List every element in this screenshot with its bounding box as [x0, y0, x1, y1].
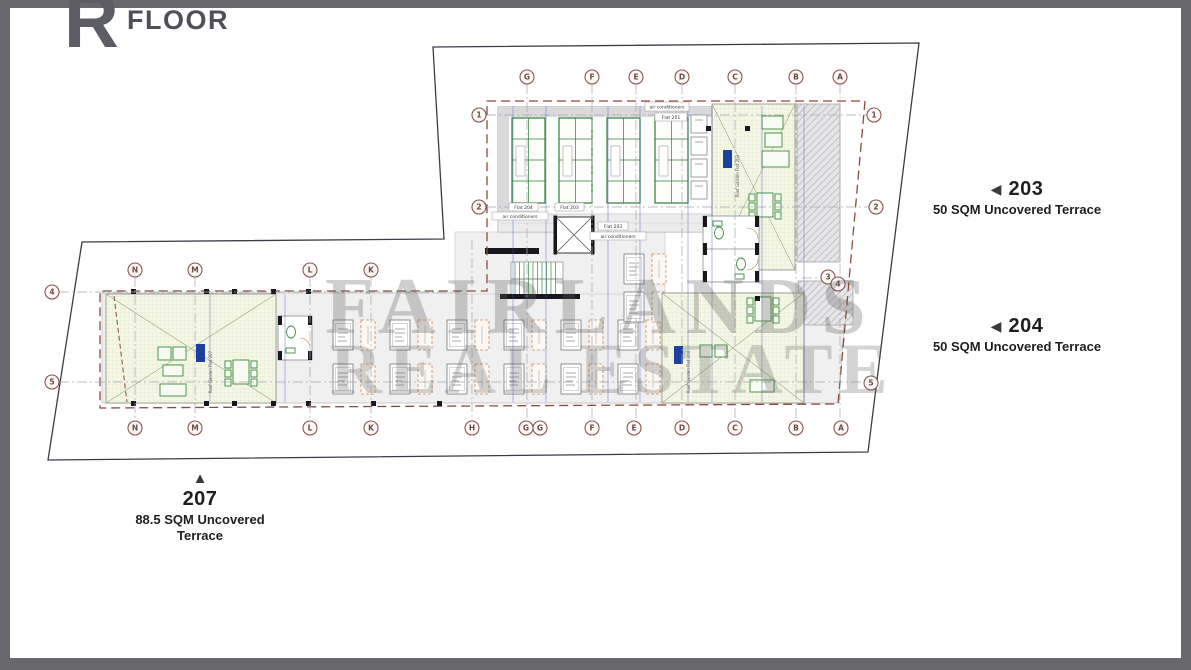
roof-garden-203-text: Roof Garden Flat 203	[735, 154, 740, 197]
svg-text:air conditioners: air conditioners	[649, 105, 685, 111]
svg-text:H: H	[469, 424, 475, 433]
unit-203-label: ◀ 203 50 SQM Uncovered Terrace	[928, 178, 1106, 217]
left-arrow-icon: ◀	[991, 318, 1002, 335]
svg-text:D: D	[679, 424, 685, 433]
svg-text:A: A	[837, 73, 843, 82]
svg-text:air conditioners: air conditioners	[502, 214, 538, 220]
wc-rooms-tower	[703, 216, 759, 282]
svg-text:5: 5	[49, 378, 54, 387]
svg-text:2: 2	[873, 203, 878, 212]
svg-text:4: 4	[835, 280, 840, 289]
unit-204-desc: 50 SQM Uncovered Terrace	[928, 339, 1106, 354]
unit-207-desc-line1: 88.5 SQM Uncovered	[118, 512, 282, 527]
svg-text:B: B	[793, 73, 799, 82]
up-arrow-icon: ▲	[118, 471, 282, 486]
svg-text:Flat 202: Flat 202	[604, 224, 623, 230]
svg-text:N: N	[132, 424, 138, 433]
elevator-shaft	[554, 216, 595, 255]
svg-text:E: E	[633, 73, 638, 82]
svg-text:5: 5	[868, 379, 873, 388]
svg-text:F: F	[589, 424, 594, 433]
svg-text:F: F	[589, 73, 594, 82]
svg-text:N: N	[132, 266, 138, 275]
roof-garden-204-text: Roof Garden Flat 204	[686, 350, 691, 393]
unit-207-desc-line2: Terrace	[118, 528, 282, 543]
terrace-207: Roof Garden Flat 207	[106, 294, 276, 403]
svg-text:C: C	[732, 73, 738, 82]
unit-207-number: 207	[118, 488, 282, 511]
svg-text:L: L	[308, 266, 313, 275]
svg-text:B: B	[793, 424, 799, 433]
svg-text:C: C	[732, 424, 738, 433]
wc-room-wing	[278, 316, 312, 360]
unit-204-number: 204	[1008, 315, 1043, 338]
svg-text:G: G	[524, 73, 530, 82]
svg-text:G: G	[523, 424, 529, 433]
svg-text:4: 4	[49, 288, 54, 297]
svg-text:Flat 203: Flat 203	[560, 205, 579, 211]
svg-text:A: A	[838, 424, 844, 433]
svg-text:M: M	[191, 266, 198, 275]
svg-text:Flat 201: Flat 201	[662, 115, 681, 121]
roof-garden-207-tag	[196, 344, 205, 362]
hatched-block-lower	[798, 281, 853, 325]
unit-203-number: 203	[1008, 178, 1043, 201]
hatched-strip-right	[797, 104, 840, 262]
svg-text:L: L	[308, 424, 313, 433]
unit-207-label: ▲ 207 88.5 SQM Uncovered Terrace	[118, 471, 282, 543]
svg-text:1: 1	[871, 111, 876, 120]
svg-text:2: 2	[476, 203, 481, 212]
unit-203-desc: 50 SQM Uncovered Terrace	[928, 202, 1106, 217]
svg-text:3: 3	[825, 273, 830, 282]
svg-text:D: D	[679, 73, 685, 82]
svg-text:E: E	[631, 424, 636, 433]
svg-text:air conditioners: air conditioners	[600, 234, 636, 240]
svg-text:Flat 204: Flat 204	[514, 205, 533, 211]
left-arrow-icon: ◀	[991, 181, 1002, 198]
svg-text:1: 1	[476, 111, 481, 120]
unit-204-label: ◀ 204 50 SQM Uncovered Terrace	[928, 315, 1106, 354]
svg-text:G: G	[537, 424, 543, 433]
roof-garden-203-tag	[723, 150, 732, 168]
floor-plan-page: R FLOOR	[0, 0, 1191, 670]
roof-garden-207-text: Roof Garden Flat 207	[208, 350, 213, 393]
svg-text:M: M	[191, 424, 198, 433]
terrace-204: Roof Garden Flat 204	[662, 293, 804, 403]
